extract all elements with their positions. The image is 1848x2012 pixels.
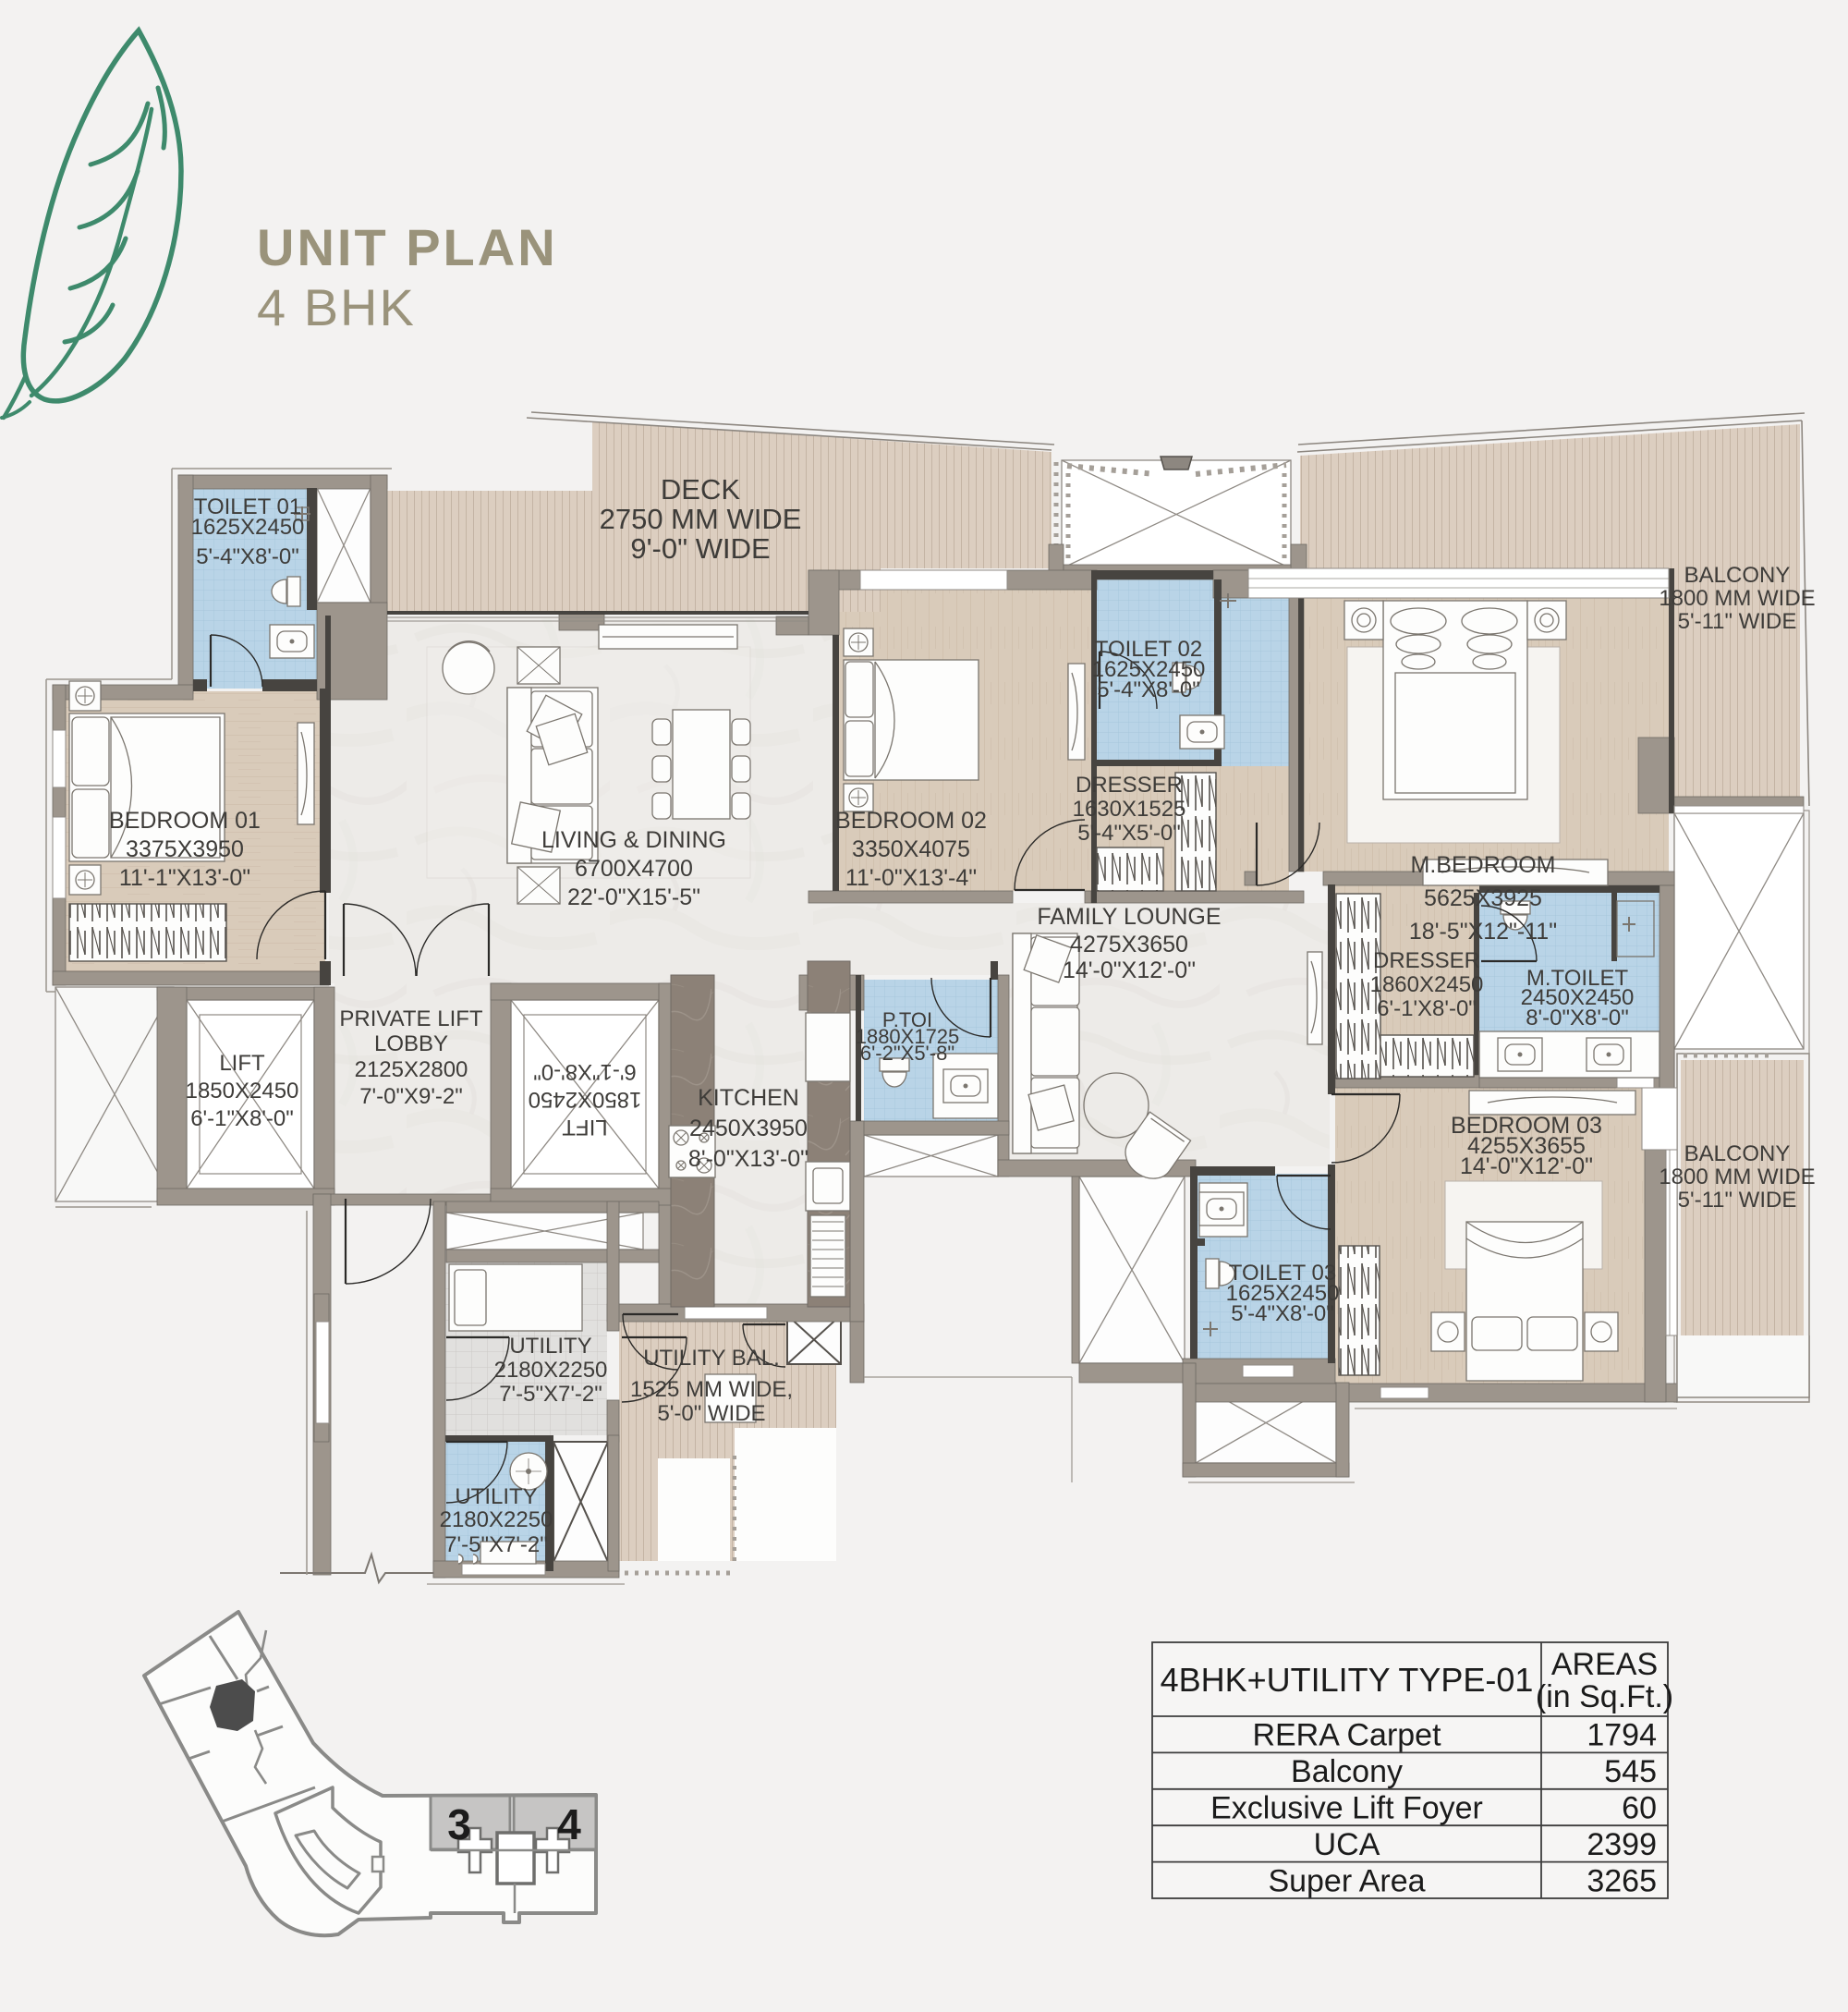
svg-text:FAMILY LOUNGE: FAMILY LOUNGE [1037,904,1221,930]
svg-text:2399: 2399 [1587,1827,1657,1862]
svg-text:Super Area: Super Area [1268,1863,1425,1898]
svg-text:22'-0"X15'-5": 22'-0"X15'-5" [567,884,700,910]
svg-text:UTILITY: UTILITY [509,1334,591,1359]
svg-text:5625X3925: 5625X3925 [1424,885,1542,911]
svg-text:1794: 1794 [1587,1718,1657,1753]
svg-text:UNIT PLAN: UNIT PLAN [257,218,558,276]
svg-text:1800 MM WIDE: 1800 MM WIDE [1659,1165,1815,1189]
svg-text:M.BEDROOM: M.BEDROOM [1411,852,1556,878]
svg-text:UTILITY: UTILITY [455,1484,537,1509]
svg-text:BALCONY: BALCONY [1684,1141,1791,1166]
svg-text:11'-1"X13'-0": 11'-1"X13'-0" [119,865,250,891]
svg-text:4: 4 [557,1800,581,1848]
svg-text:PRIVATE LIFT: PRIVATE LIFT [339,1006,482,1031]
svg-text:6'-2"X5'-8": 6'-2"X5'-8" [860,1042,954,1065]
svg-text:8'-0"X13'-0": 8'-0"X13'-0" [688,1146,808,1172]
svg-text:DRESSER: DRESSER [1076,773,1183,798]
svg-text:2180X2250: 2180X2250 [440,1507,553,1532]
svg-text:5'-0" WIDE: 5'-0" WIDE [657,1401,765,1426]
svg-text:5'-11" WIDE: 5'-11" WIDE [1678,1188,1797,1213]
svg-text:BEDROOM 02: BEDROOM 02 [835,808,987,834]
svg-text:Exclusive Lift Foyer: Exclusive Lift Foyer [1210,1791,1483,1826]
svg-text:2180X2250: 2180X2250 [494,1358,608,1383]
svg-text:6'-1'X8'-0": 6'-1'X8'-0" [1377,996,1477,1021]
svg-text:14'-0"X12'-0": 14'-0"X12'-0" [1460,1153,1593,1179]
svg-text:LIFT: LIFT [562,1115,608,1140]
svg-text:7'-0"X9'-2": 7'-0"X9'-2" [359,1084,463,1109]
svg-text:2750 MM WIDE: 2750 MM WIDE [600,503,802,535]
svg-text:3375X3950: 3375X3950 [126,836,244,862]
svg-text:7'-5"X7'-2": 7'-5"X7'-2" [444,1532,548,1557]
svg-text:1850X2450: 1850X2450 [186,1079,299,1104]
svg-text:5'-4"X8'-0": 5'-4"X8'-0" [196,544,299,569]
svg-text:6'-1"X8'-0": 6'-1"X8'-0" [190,1106,294,1131]
svg-text:KITCHEN: KITCHEN [698,1085,799,1111]
svg-text:1525 MM WIDE,: 1525 MM WIDE, [630,1377,793,1402]
svg-text:8'-0"X8'-0": 8'-0"X8'-0" [1526,1006,1629,1030]
svg-text:3265: 3265 [1587,1863,1657,1898]
svg-text:18'-5"X12"-11": 18'-5"X12"-11" [1409,919,1557,945]
svg-text:1850X2450: 1850X2450 [529,1087,642,1112]
svg-text:3: 3 [447,1800,471,1848]
svg-text:2125X2800: 2125X2800 [355,1057,468,1082]
svg-text:BALCONY: BALCONY [1684,563,1791,588]
svg-text:9'-0" WIDE: 9'-0" WIDE [630,532,770,565]
svg-text:BEDROOM 01: BEDROOM 01 [109,808,261,834]
svg-text:60: 60 [1622,1791,1657,1826]
svg-text:Balcony: Balcony [1291,1754,1403,1789]
svg-text:7'-5"X7'-2": 7'-5"X7'-2" [499,1382,602,1407]
svg-text:4BHK+UTILITY TYPE-01: 4BHK+UTILITY TYPE-01 [1161,1661,1534,1699]
svg-text:6'-1"X8'-0": 6'-1"X8'-0" [533,1059,637,1084]
svg-text:545: 545 [1604,1754,1657,1789]
svg-text:4275X3650: 4275X3650 [1070,932,1188,957]
svg-text:1625X2450: 1625X2450 [191,515,305,540]
svg-text:5'-4"X5'-0": 5'-4"X5'-0" [1077,821,1181,846]
svg-text:3350X4075: 3350X4075 [852,836,970,862]
svg-text:LIVING & DINING: LIVING & DINING [541,827,726,853]
svg-text:UCA: UCA [1314,1827,1380,1862]
svg-text:UTILITY BAL.: UTILITY BAL. [643,1346,780,1371]
svg-text:5'-4"X8'-0": 5'-4"X8'-0" [1097,677,1200,702]
svg-text:LOBBY: LOBBY [374,1031,448,1056]
svg-text:(in Sq.Ft.): (in Sq.Ft.) [1536,1679,1673,1714]
svg-text:LIFT: LIFT [219,1051,265,1076]
svg-text:14'-0"X12'-0": 14'-0"X12'-0" [1063,957,1196,983]
svg-text:1800 MM WIDE: 1800 MM WIDE [1659,586,1815,611]
svg-text:DECK: DECK [661,473,740,506]
svg-text:4 BHK: 4 BHK [257,278,416,336]
svg-text:1630X1525: 1630X1525 [1073,797,1186,822]
svg-text:AREAS: AREAS [1551,1647,1658,1682]
svg-text:5'-11" WIDE: 5'-11" WIDE [1678,609,1797,634]
svg-text:1860X2450: 1860X2450 [1370,972,1484,997]
svg-text:DRESSER: DRESSER [1373,948,1480,973]
svg-text:5'-4"X8'-0": 5'-4"X8'-0" [1231,1301,1334,1326]
svg-text:2450X3950: 2450X3950 [689,1116,808,1141]
svg-text:6700X4700: 6700X4700 [575,856,693,882]
svg-text:RERA Carpet: RERA Carpet [1252,1718,1441,1753]
svg-text:11'-0"X13'-4": 11'-0"X13'-4" [845,865,977,891]
